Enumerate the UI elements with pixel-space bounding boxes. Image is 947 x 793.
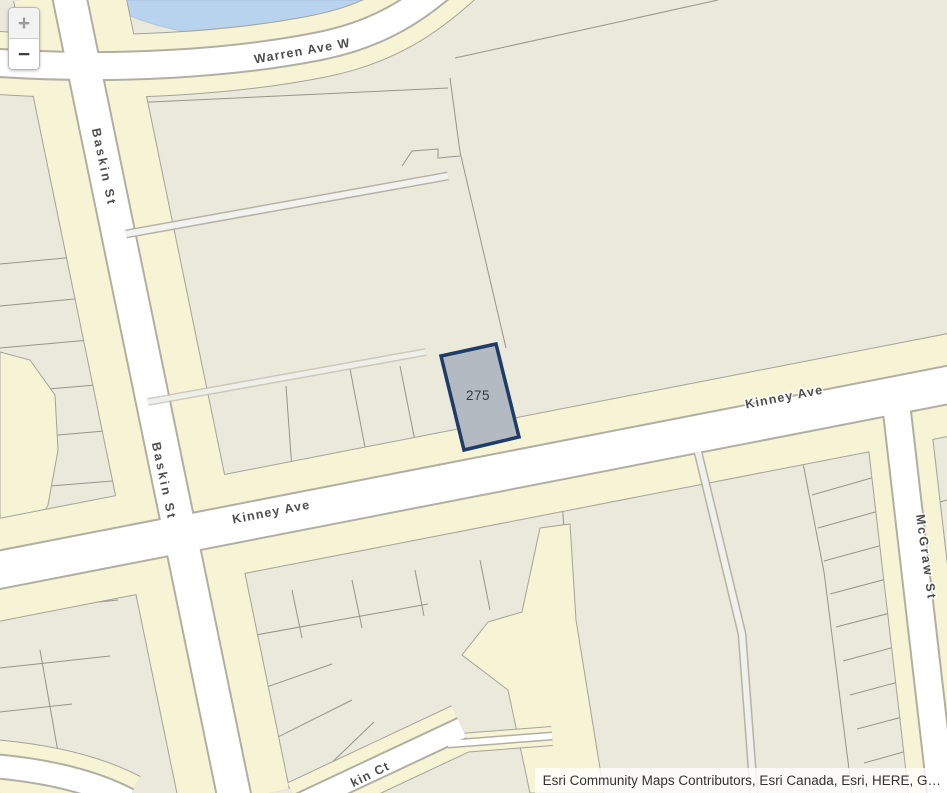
map-viewport[interactable]: Warren Ave W Baskin St Baskin St Kinney … — [0, 0, 947, 793]
map-canvas[interactable]: Warren Ave W Baskin St Baskin St Kinney … — [0, 0, 947, 793]
attribution-bar: Esri Community Maps Contributors, Esri C… — [535, 768, 947, 793]
label-parcel-275: 275 — [466, 388, 490, 403]
attribution-text: Esri Community Maps Contributors, Esri C… — [543, 773, 941, 788]
zoom-out-button[interactable]: − — [9, 39, 39, 69]
zoom-in-button[interactable]: + — [9, 8, 39, 39]
zoom-control: + − — [8, 7, 40, 70]
